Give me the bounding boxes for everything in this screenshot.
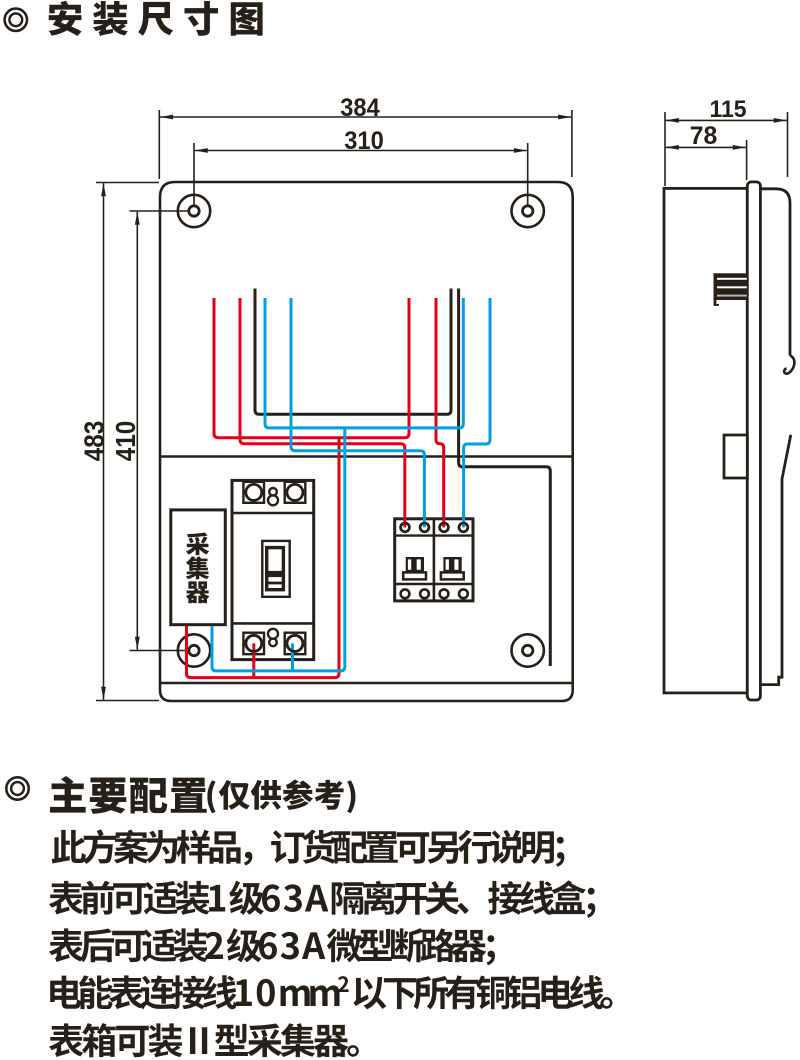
- svg-text:384: 384: [340, 94, 380, 122]
- svg-text:483: 483: [79, 421, 110, 462]
- svg-text:78: 78: [690, 122, 718, 150]
- svg-text:115: 115: [710, 96, 747, 123]
- svg-text:410: 410: [110, 421, 141, 462]
- svg-text:310: 310: [344, 127, 384, 155]
